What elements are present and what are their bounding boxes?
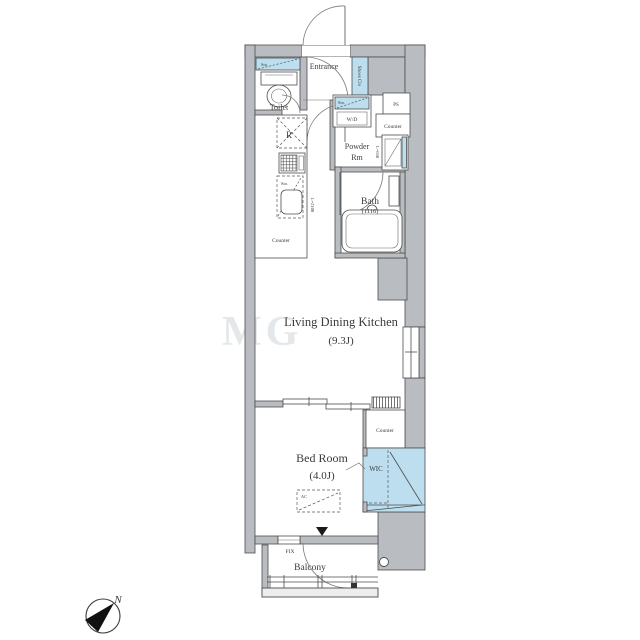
kitchen-outline (255, 115, 307, 258)
powder-room-label2: Rm (351, 153, 363, 162)
shoes-closet-label: Shoes Clo (356, 66, 361, 87)
wic-leader-line (346, 463, 365, 470)
washer-dryer-label: W/D (347, 117, 358, 123)
wall-segment-bath (335, 253, 405, 258)
ldk-window (403, 327, 419, 378)
entrance-door-opening (302, 45, 350, 57)
wall-segment-bedroom (255, 401, 283, 407)
fix-window: FIX (278, 536, 300, 555)
sink-bowl (281, 190, 302, 214)
compass-north-label: N (113, 594, 122, 606)
toilet-tank-icon (261, 72, 297, 85)
wall-segment (419, 327, 425, 378)
wall-circle-marker (380, 558, 389, 567)
wall-segment-toilet (300, 57, 307, 110)
wall-segment (363, 502, 367, 512)
wall-segment (363, 448, 367, 456)
bath-size-label: (1116) (362, 208, 379, 215)
wall-segment (245, 45, 255, 553)
toilet-shelf-label: Sto. (261, 62, 268, 67)
balcony-label: Balcony (294, 563, 326, 573)
wic-label: WIC (369, 465, 383, 473)
sliding-door (283, 397, 400, 411)
wall-segment-balcony (262, 545, 268, 595)
wall-segment-bedroom (255, 536, 278, 544)
entry-direction-marker (316, 527, 328, 536)
entrance-label: Entrance (310, 62, 339, 71)
utility-zone: Sto. W/D PS Counter Powder Rm L=650 (333, 93, 410, 170)
wic-area (363, 448, 425, 512)
sink-shelf-label: Sto. (281, 181, 288, 186)
kitchen-counter-label: Counter (272, 238, 290, 244)
bedroom-label: Bed Room (296, 451, 348, 465)
kitchen-zone: R Sto. L=2100 Counter (255, 115, 315, 258)
hanger-hatch (372, 397, 400, 408)
powder-counter-label: Counter (384, 124, 402, 130)
pipe-space-label: PS (393, 103, 399, 108)
walk-in-closet: WIC (363, 448, 425, 512)
wall-segment (368, 57, 405, 95)
wd-shelf-label: Sto. (338, 100, 345, 105)
refrigerator-label: R (286, 130, 292, 140)
bath-shelf-icon (389, 176, 399, 206)
floor-plan-drawing: MG Shoes Clo Entrance (0, 0, 640, 640)
ac-label: AC (301, 494, 307, 499)
basin-length-label: L=650 (375, 146, 380, 159)
floor-plan-page: MG Shoes Clo Entrance (0, 0, 640, 640)
sliding-door-panel (283, 399, 327, 404)
wall-segment (378, 258, 407, 300)
ldk-size-label: (9.3J) (328, 335, 354, 347)
bathtub-icon (342, 210, 402, 252)
bedroom-size-label: (4.0J) (309, 470, 335, 482)
toilet-room: Sto. Toilet (256, 58, 300, 113)
balcony: Balcony (262, 543, 378, 597)
stove-burners (281, 155, 297, 171)
fix-label: FIX (286, 549, 295, 555)
wall-segment-bedroom (300, 536, 378, 544)
toilet-label: Toilet (270, 103, 289, 112)
bedroom-counter-label: Counter (376, 428, 394, 434)
compass-icon: N (85, 594, 122, 633)
ac-unit: AC (297, 490, 340, 512)
powder-room-label: Powder (345, 142, 370, 151)
wall-segment (405, 45, 425, 327)
bath-label: Bath (361, 197, 379, 207)
entrance-door-arc (303, 6, 345, 45)
bath-room: Bath (1116) (340, 172, 402, 252)
railing-base (262, 588, 378, 597)
door-gap (302, 45, 350, 57)
wall-segment (405, 378, 425, 448)
railing-block (351, 583, 357, 588)
kitchen-length-label: L=2100 (310, 198, 315, 213)
ldk-label: Living Dining Kitchen (284, 315, 399, 329)
washbasin-side (402, 137, 407, 168)
sliding-door-panel (326, 404, 370, 409)
